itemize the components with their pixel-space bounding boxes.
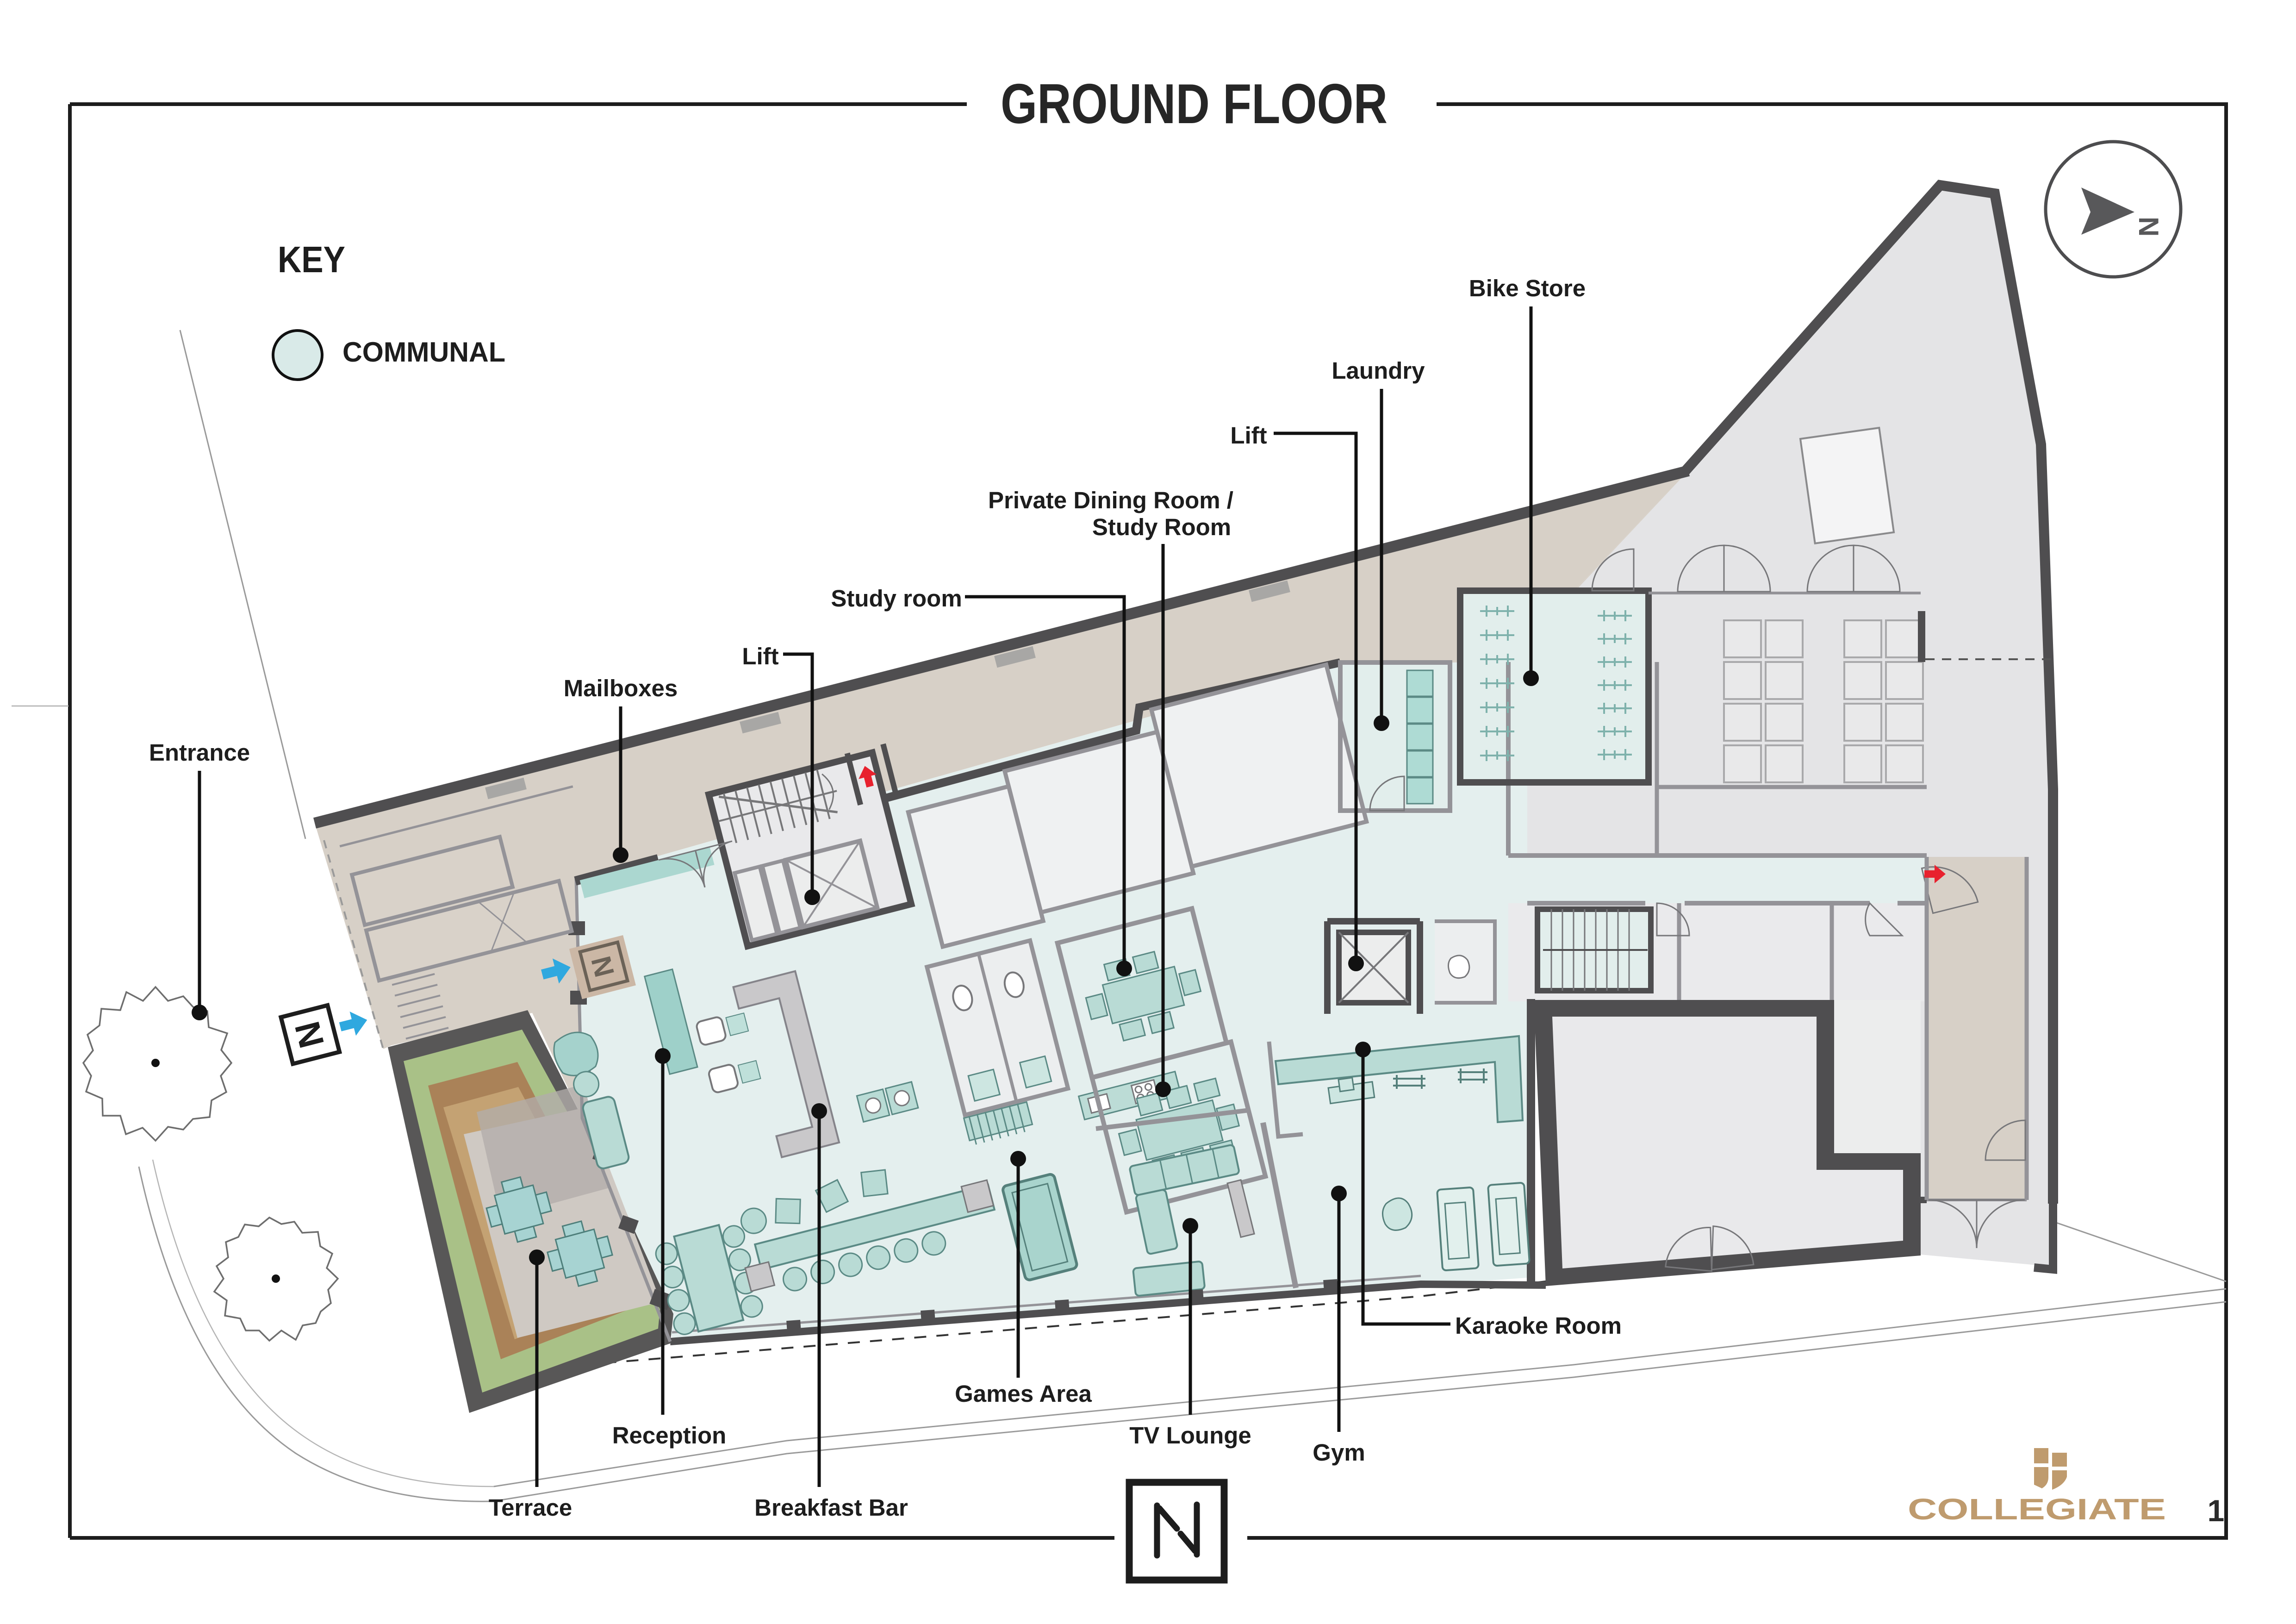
svg-text:Gym: Gym: [1313, 1439, 1365, 1466]
svg-text:Entrance: Entrance: [149, 739, 250, 766]
svg-text:Terrace: Terrace: [489, 1494, 572, 1521]
svg-text:N: N: [2133, 217, 2164, 237]
svg-text:Study Room: Study Room: [1092, 514, 1231, 540]
svg-text:COLLEGIATE: COLLEGIATE: [1908, 1493, 2166, 1526]
svg-text:COMMUNAL: COMMUNAL: [342, 337, 505, 368]
svg-text:Bike Store: Bike Store: [1469, 275, 1586, 301]
svg-text:Lift: Lift: [742, 643, 778, 669]
svg-text:TV Lounge: TV Lounge: [1129, 1422, 1251, 1449]
svg-text:Laundry: Laundry: [1332, 357, 1425, 384]
svg-text:Lift: Lift: [1230, 422, 1267, 449]
svg-text:Karaoke Room: Karaoke Room: [1455, 1312, 1622, 1339]
svg-text:Private Dining Room /: Private Dining Room /: [988, 487, 1233, 513]
svg-text:Study room: Study room: [831, 585, 962, 612]
svg-text:Mailboxes: Mailboxes: [564, 675, 678, 701]
svg-text:Breakfast Bar: Breakfast Bar: [754, 1494, 908, 1521]
svg-text:Games Area: Games Area: [955, 1380, 1092, 1407]
svg-text:GROUND FLOOR: GROUND FLOOR: [1001, 72, 1388, 135]
svg-text:Reception: Reception: [612, 1422, 727, 1449]
svg-text:1: 1: [2208, 1493, 2225, 1528]
svg-text:KEY: KEY: [278, 239, 345, 280]
